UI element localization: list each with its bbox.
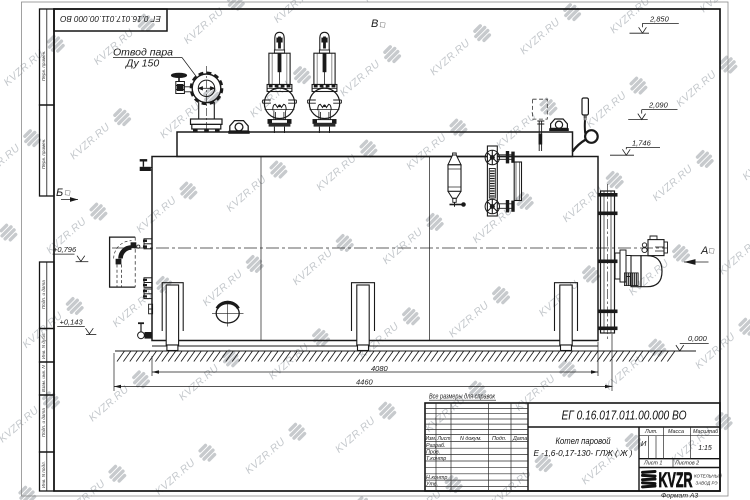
svg-text:Масштаб: Масштаб xyxy=(693,429,719,435)
svg-text:Инв. N дубл.: Инв. N дубл. xyxy=(41,332,46,359)
svg-text:Все размеры для справок: Все размеры для справок xyxy=(429,393,496,401)
svg-text:Подп.: Подп. xyxy=(492,436,506,442)
svg-text:В: В xyxy=(371,18,378,30)
svg-text:+0,796: +0,796 xyxy=(53,245,77,254)
svg-text:2,090: 2,090 xyxy=(648,101,669,110)
svg-text:4080: 4080 xyxy=(371,364,389,373)
svg-text:0,000: 0,000 xyxy=(688,334,708,343)
svg-text:KVZR: KVZR xyxy=(659,469,693,492)
svg-text:4460: 4460 xyxy=(356,378,374,387)
svg-text:Дата: Дата xyxy=(512,436,527,442)
svg-text:Формат А3: Формат А3 xyxy=(661,493,698,500)
svg-text:И: И xyxy=(641,439,647,448)
svg-text:ЗАВОД РЭ: ЗАВОД РЭ xyxy=(696,481,718,486)
svg-text:ЕГ 0.16.017.011.00.000 ВО: ЕГ 0.16.017.011.00.000 ВО xyxy=(60,14,161,23)
svg-text:Лист: Лист xyxy=(437,436,451,442)
svg-text:Лист 1: Лист 1 xyxy=(643,461,662,467)
svg-text:Перв. примен.: Перв. примен. xyxy=(41,138,46,169)
svg-text:1:15: 1:15 xyxy=(698,445,712,452)
svg-text:Разраб.: Разраб. xyxy=(426,443,446,449)
svg-text:Подп. и дата: Подп. и дата xyxy=(41,280,46,309)
svg-text:Лит.: Лит. xyxy=(644,429,658,435)
svg-text:Листов 2: Листов 2 xyxy=(674,461,699,467)
svg-text:Инв. N подл.: Инв. N подл. xyxy=(41,461,46,488)
svg-text:КОТЕЛЬНЫЙ: КОТЕЛЬНЫЙ xyxy=(694,474,722,479)
svg-text:Н.контр: Н.контр xyxy=(426,475,447,481)
svg-text:Пров.: Пров. xyxy=(426,450,440,456)
svg-text:N докум.: N докум. xyxy=(460,436,482,442)
svg-text:Масса: Масса xyxy=(668,429,684,435)
svg-text:1,746: 1,746 xyxy=(632,138,652,147)
svg-text:Взам. инв. N: Взам. инв. N xyxy=(41,365,46,392)
svg-text:Е -1,6-0,17-130- ГЛЖ ( Ж ): Е -1,6-0,17-130- ГЛЖ ( Ж ) xyxy=(534,449,633,458)
svg-text:Ду 150: Ду 150 xyxy=(125,58,159,70)
svg-text:Б: Б xyxy=(56,187,63,199)
svg-text:Подп. и дата: Подп. и дата xyxy=(41,408,46,437)
svg-text:ЕГ 0.16.017.011.00.000 ВО: ЕГ 0.16.017.011.00.000 ВО xyxy=(562,409,687,423)
svg-text:2,850: 2,850 xyxy=(649,15,670,24)
svg-text:+0,143: +0,143 xyxy=(60,318,84,327)
svg-text:Утв.: Утв. xyxy=(425,482,438,488)
svg-text:Т.контр: Т.контр xyxy=(426,456,446,462)
svg-text:Изм.: Изм. xyxy=(426,436,437,442)
svg-text:Перв. примен.: Перв. примен. xyxy=(41,50,46,81)
svg-text:Котел паровой: Котел паровой xyxy=(556,436,611,446)
svg-text:А: А xyxy=(700,245,708,257)
